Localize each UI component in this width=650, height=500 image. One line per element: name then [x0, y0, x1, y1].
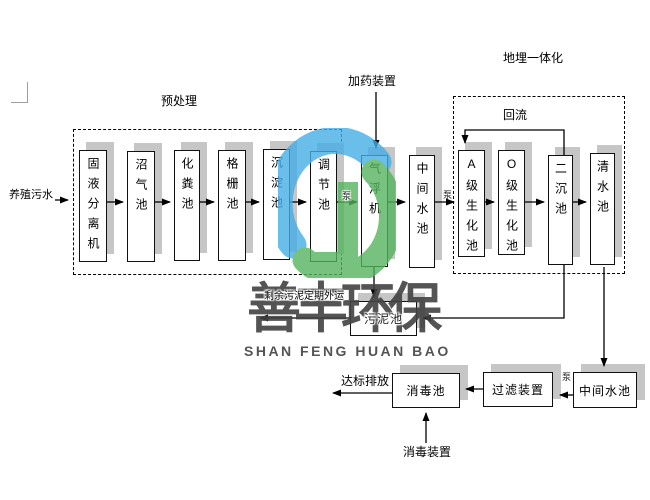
sludge-pool-label: 污泥池: [350, 310, 417, 327]
process-box-clear-water-pool: 清水池: [590, 153, 615, 265]
process-box-label: O级生化池: [506, 151, 518, 259]
process-box-air-flotation-machine: 气浮机: [361, 155, 388, 267]
process-flow-diagram: 预处理 地埋一体化 养殖污水 加药装置 回流 达标排放 消毒装置 剩余污泥定期外…: [0, 0, 650, 500]
process-box-label: 清水池: [597, 154, 609, 220]
process-box-label: 消毒池: [406, 382, 445, 399]
pretreatment-group-frame: [73, 129, 342, 275]
process-box-label: 沼气池: [135, 152, 147, 218]
process-box-filter-device: 过滤装置: [483, 372, 553, 407]
process-box-a-level-bio-pool: A级生化池: [458, 150, 485, 257]
process-box-label: 气浮机: [369, 156, 381, 222]
process-box-label: A级生化池: [466, 151, 478, 259]
process-box-label: 格栅池: [226, 151, 238, 217]
process-box-label: 调节池: [318, 152, 330, 218]
process-box-disinfection-pool: 消毒池: [392, 373, 460, 408]
buried-group-label: 地埋一体化: [500, 52, 566, 65]
process-box-biogas-pool: 沼气池: [127, 151, 155, 262]
dosing-device-label: 加药装置: [348, 75, 396, 88]
brand-watermark-en: SHAN FENG HUAN BAO: [244, 343, 451, 359]
reflux-label: 回流: [503, 109, 527, 122]
pretreatment-group-label: 预处理: [149, 95, 209, 108]
page-corner-mark-horizontal: [11, 102, 28, 103]
process-box-septic-tank: 化粪池: [174, 150, 200, 261]
pump-label-1: 泵: [342, 192, 351, 201]
process-box-secondary-sedimentation: 二沉池: [548, 155, 573, 265]
process-box-regulation-pool: 调节池: [310, 151, 337, 262]
process-box-label: 化粪池: [181, 151, 193, 217]
sludge-out-label: 剩余污泥定期外运: [264, 291, 344, 302]
process-box-label: 二沉池: [555, 156, 567, 222]
process-box-label: 过滤装置: [492, 381, 544, 398]
process-box-grid-pool: 格栅池: [218, 150, 246, 261]
disinfect-device-label: 消毒装置: [403, 446, 451, 459]
process-box-label: 中间水池: [579, 382, 631, 399]
pump-label-2: 泵: [443, 191, 452, 200]
process-box-label: 中间水池: [416, 156, 428, 242]
influent-label: 养殖污水: [9, 189, 53, 201]
process-box-label: 沉淀池: [271, 150, 283, 216]
pump-label-3: 泵: [562, 373, 571, 382]
page-corner-mark-vertical: [27, 82, 28, 103]
process-box-intermediate-pool-1: 中间水池: [409, 155, 435, 268]
process-box-intermediate-pool-2: 中间水池: [573, 372, 637, 408]
process-box-sedimentation-pool: 沉淀池: [263, 149, 290, 260]
process-box-o-level-bio-pool: O级生化池: [498, 150, 525, 255]
discharge-label: 达标排放: [341, 375, 389, 388]
process-box-label: 固液分离机: [87, 151, 99, 257]
process-box-solid-liquid-separator: 固液分离机: [79, 150, 107, 262]
